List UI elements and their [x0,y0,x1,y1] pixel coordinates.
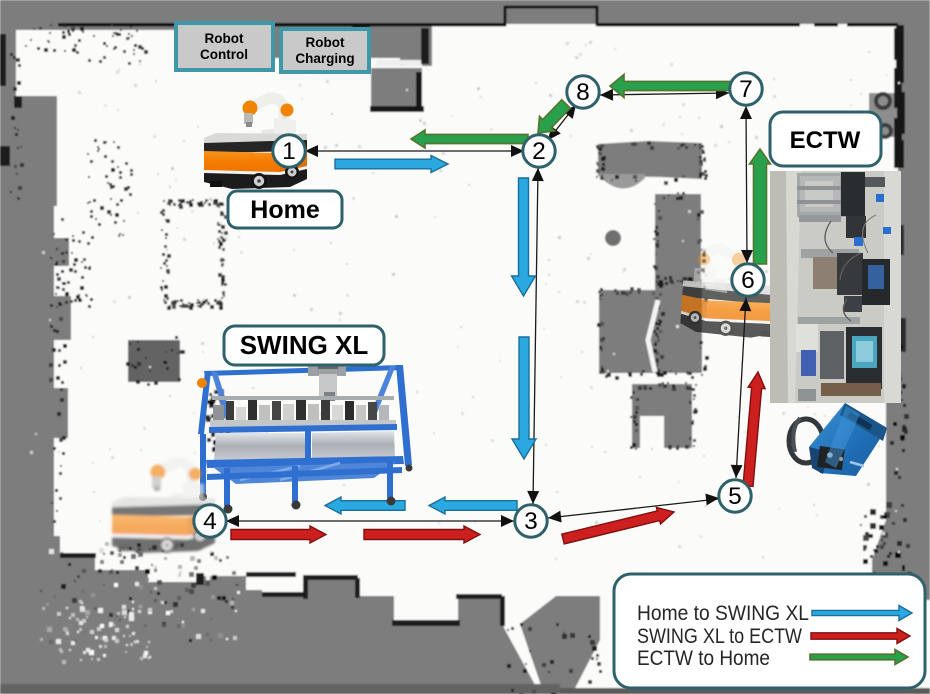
svg-text:8: 8 [576,79,590,106]
svg-text:6: 6 [741,267,755,294]
svg-text:ECTW to Home: ECTW to Home [637,647,770,670]
svg-text:4: 4 [203,508,217,535]
svg-text:Home: Home [250,196,320,224]
svg-text:SWING XL: SWING XL [240,330,369,360]
svg-text:Charging: Charging [295,51,354,66]
svg-text:7: 7 [739,76,753,103]
svg-text:2: 2 [532,138,546,165]
svg-text:3: 3 [524,508,538,535]
svg-text:ECTW: ECTW [790,127,861,154]
svg-text:Home to SWING XL: Home to SWING XL [637,602,809,625]
svg-text:Robot: Robot [306,35,345,50]
svg-text:5: 5 [728,483,742,510]
svg-text:SWING XL to ECTW: SWING XL to ECTW [637,625,802,648]
svg-text:1: 1 [282,138,296,165]
svg-text:Robot: Robot [205,31,244,46]
svg-text:Control: Control [200,47,248,62]
